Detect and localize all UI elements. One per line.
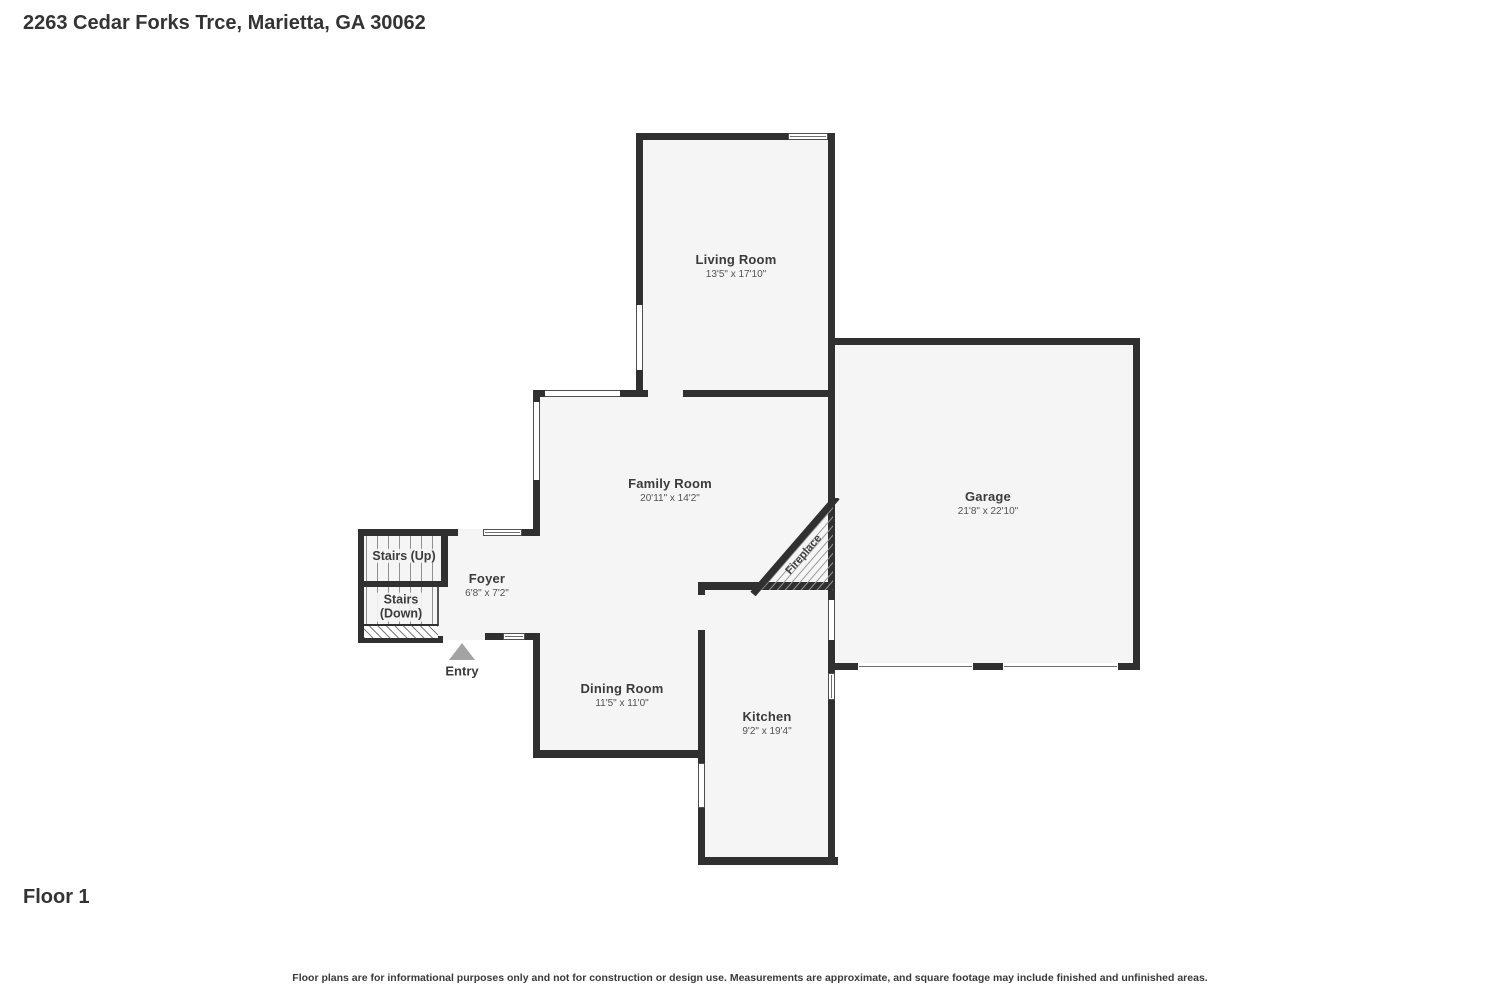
wall [698, 808, 705, 865]
wall [973, 663, 1003, 670]
wall [533, 640, 540, 758]
living-room-label: Living Room 13'5" x 17'10" [696, 252, 777, 280]
entry-label: Entry [445, 664, 478, 679]
kitchen-label: Kitchen 9'2" x 19'4" [742, 709, 791, 737]
stairs-down-label: Stairs (Down) [377, 593, 425, 622]
wall [828, 640, 835, 673]
entry-arrow-icon [449, 643, 475, 660]
wall [698, 630, 705, 763]
wall [533, 750, 705, 758]
page-title: 2263 Cedar Forks Trce, Marietta, GA 3006… [23, 12, 426, 35]
window [698, 763, 705, 808]
wall [828, 700, 835, 865]
foyer-family-opening [458, 529, 483, 536]
dining-room-label: Dining Room 11'5" x 11'0" [580, 681, 663, 709]
wall [698, 857, 838, 865]
floor-plan-page: 2263 Cedar Forks Trce, Marietta, GA 3006… [0, 0, 1500, 1000]
wall [636, 133, 643, 305]
floor-number-label: Floor 1 [23, 886, 90, 909]
window [545, 390, 620, 397]
foyer-label: Foyer 6'8" x 7'2" [465, 571, 509, 599]
wall [533, 390, 540, 402]
window [483, 529, 522, 536]
foyer-east-opening [533, 536, 540, 640]
family-room-label: Family Room 20'11" x 14'2" [628, 476, 712, 504]
wall [525, 633, 540, 640]
wall [533, 480, 540, 536]
entry-door-opening [443, 633, 485, 640]
wall [485, 633, 503, 640]
dining-room-floor [540, 582, 698, 750]
garage-label: Garage 21'8" x 22'10" [958, 489, 1018, 517]
fireplace-symbol: Fireplace [750, 498, 840, 596]
stairs-up-label: Stairs (Up) [369, 549, 438, 563]
window [788, 133, 828, 140]
wall [698, 582, 705, 595]
window [636, 305, 643, 370]
living-family-opening [648, 390, 683, 397]
stairs-break-hatch [364, 624, 438, 638]
window [503, 633, 525, 640]
wall [636, 370, 643, 397]
garage-kitchen-opening [828, 600, 835, 640]
window [533, 402, 540, 480]
wall [828, 338, 1140, 345]
garage-door [1003, 663, 1118, 670]
stair-edge [437, 587, 439, 626]
kitchen-dining-opening [698, 595, 705, 630]
garage-door [858, 663, 973, 670]
wall [1133, 338, 1140, 670]
wall [441, 529, 448, 587]
disclaimer-text: Floor plans are for informational purpos… [0, 972, 1500, 984]
window [828, 673, 835, 700]
wall [683, 390, 835, 397]
